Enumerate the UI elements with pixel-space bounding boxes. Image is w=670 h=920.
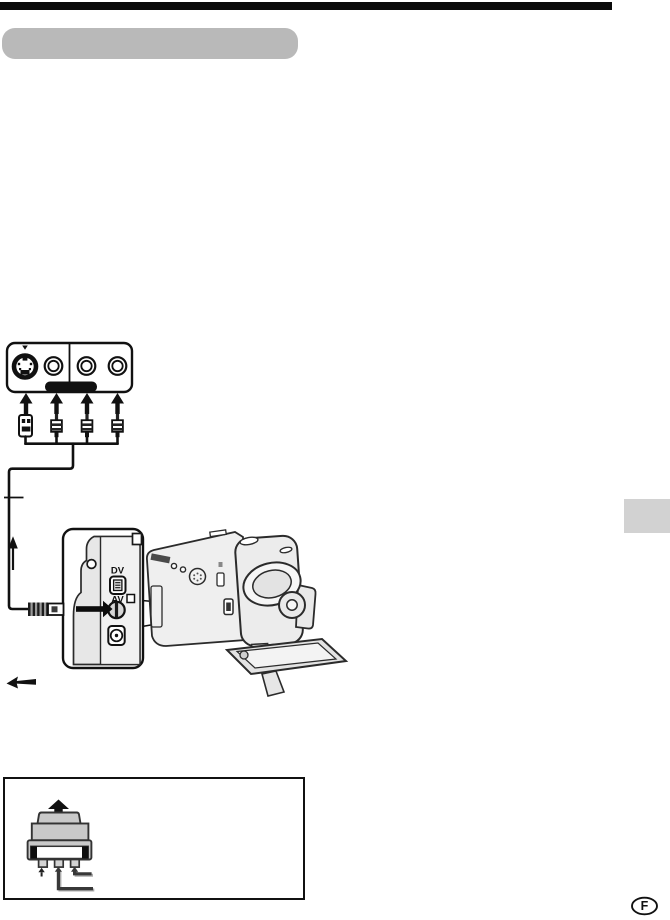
speaker-dial-icon xyxy=(190,569,206,585)
dv-port-icon xyxy=(110,577,126,595)
audio-right-rca-jack-icon xyxy=(109,357,127,375)
adapter-callout-arrows xyxy=(38,867,94,890)
side-button xyxy=(171,563,176,568)
rca-plug-icon xyxy=(82,414,93,437)
s-video-jack-icon xyxy=(14,356,36,378)
rca-plug-icon xyxy=(112,414,123,437)
av-plug-icon xyxy=(28,603,64,617)
page-language-marker: F xyxy=(632,898,657,915)
dc-in-jack-icon xyxy=(108,626,124,645)
page-marker-letter: F xyxy=(641,899,649,913)
camcorder-illustration xyxy=(147,530,346,696)
jack-cover-detail xyxy=(127,595,135,603)
camcorder-av-port-icon xyxy=(224,599,233,615)
flow-left-arrow-icon xyxy=(7,677,37,689)
video-rca-jack-icon xyxy=(45,357,63,375)
rca-plug-icon xyxy=(51,414,62,437)
manual-page: DV AV xyxy=(0,0,670,920)
grip-strap xyxy=(262,671,284,696)
rear-control-dial-icon xyxy=(279,592,305,618)
plug-insert-arrows xyxy=(20,393,125,414)
scart-adapter-icon xyxy=(28,800,92,868)
strap-hook-icon xyxy=(87,560,96,569)
s-video-plug-icon xyxy=(19,415,32,437)
connection-diagram: DV AV xyxy=(0,0,670,920)
side-button xyxy=(180,567,185,572)
audio-left-rca-jack-icon xyxy=(78,357,96,375)
body-corner-detail xyxy=(133,534,142,545)
open-lcd-panel xyxy=(227,639,346,674)
panel-highlight-bar xyxy=(45,382,97,393)
camcorder-jack-closeup-panel: DV AV xyxy=(63,529,143,668)
dv-port-label: DV xyxy=(111,566,125,577)
tv-jack-panel xyxy=(7,343,132,392)
